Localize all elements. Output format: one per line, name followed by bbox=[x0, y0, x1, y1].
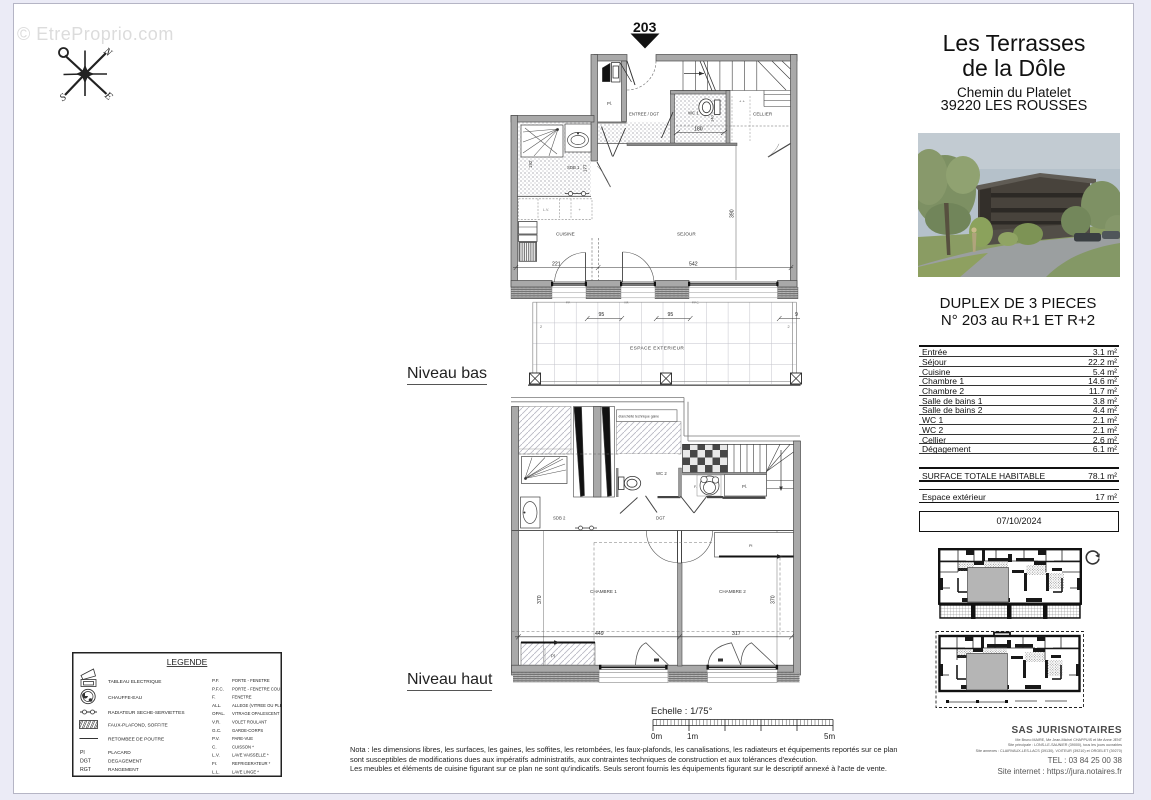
svg-text:VITRAGE OPALESCENT: VITRAGE OPALESCENT bbox=[232, 711, 280, 716]
svg-text:Pl: Pl bbox=[80, 750, 85, 756]
svg-text:GARDE-CORPS: GARDE-CORPS bbox=[232, 728, 263, 733]
svg-text:CHAMBRE 1: CHAMBRE 1 bbox=[590, 589, 617, 594]
svg-text:LAVE LINGE *: LAVE LINGE * bbox=[232, 769, 259, 774]
svg-text:5m: 5m bbox=[824, 732, 835, 741]
svg-text:542: 542 bbox=[689, 262, 698, 268]
svg-text:+ +: + + bbox=[739, 99, 745, 104]
svg-text:317: 317 bbox=[732, 631, 741, 637]
svg-text:V.R.: V.R. bbox=[212, 720, 221, 725]
svg-text:étanchéité technique gaine: étanchéité technique gaine bbox=[619, 415, 660, 419]
svg-text:ALL.: ALL. bbox=[212, 703, 221, 708]
svg-text:CELLIER: CELLIER bbox=[753, 112, 773, 117]
svg-text:Pl.: Pl. bbox=[742, 484, 747, 489]
svg-text:DEGAGEMENT: DEGAGEMENT bbox=[108, 759, 142, 765]
svg-text:OPAL.: OPAL. bbox=[212, 711, 225, 716]
svg-text:WC 2: WC 2 bbox=[656, 471, 667, 476]
svg-text:Pl: Pl bbox=[551, 654, 555, 659]
svg-text:180: 180 bbox=[694, 127, 703, 133]
svg-text:370: 370 bbox=[771, 595, 777, 604]
svg-text:FAUX-PLAFOND, SOFFITE: FAUX-PLAFOND, SOFFITE bbox=[108, 723, 168, 729]
svg-text:Pl.: Pl. bbox=[607, 101, 612, 106]
svg-text:+: + bbox=[579, 207, 582, 212]
svg-text:RADIATEUR SECHE-SERVIETTES: RADIATEUR SECHE-SERVIETTES bbox=[108, 710, 185, 716]
svg-text:C.: C. bbox=[212, 744, 217, 749]
svg-text:192: 192 bbox=[528, 160, 533, 168]
svg-text:SDB 1: SDB 1 bbox=[567, 165, 580, 170]
svg-text:PLACARD: PLACARD bbox=[108, 750, 131, 756]
svg-text:0m: 0m bbox=[651, 732, 662, 741]
svg-text:F.: F. bbox=[212, 695, 216, 700]
svg-text:L.L.: L.L. bbox=[212, 769, 220, 774]
svg-text:177: 177 bbox=[583, 164, 588, 172]
svg-text:P.F.C.: P.F.C. bbox=[692, 301, 699, 305]
svg-text:FENETRE: FENETRE bbox=[232, 695, 252, 700]
svg-text:CHAUFFE-EAU: CHAUFFE-EAU bbox=[108, 695, 143, 701]
svg-text:DGT: DGT bbox=[656, 516, 665, 521]
svg-text:PARE-VUE: PARE-VUE bbox=[232, 736, 253, 741]
svg-text:2: 2 bbox=[540, 325, 542, 329]
svg-text:CUISINE: CUISINE bbox=[556, 232, 575, 237]
svg-text:RETOMBEE DE POUTRE: RETOMBEE DE POUTRE bbox=[108, 737, 164, 743]
svg-text:F.: F. bbox=[694, 485, 697, 489]
svg-text:CHAMBRE 2: CHAMBRE 2 bbox=[719, 589, 746, 594]
svg-text:RGT: RGT bbox=[80, 767, 92, 773]
svg-text:V.R.: V.R. bbox=[624, 301, 629, 305]
svg-text:SDB 2: SDB 2 bbox=[553, 516, 566, 521]
svg-text:L.V.: L.V. bbox=[543, 208, 549, 212]
svg-text:370: 370 bbox=[537, 595, 543, 604]
svg-text:ALLEGE (VITREE OU PLEINE SELON: ALLEGE (VITREE OU PLEINE SELON LES CAS) bbox=[232, 703, 282, 708]
svg-text:LEGENDE: LEGENDE bbox=[167, 657, 208, 667]
svg-text:390: 390 bbox=[730, 209, 736, 218]
svg-text:TABLEAU ELECTRIQUE: TABLEAU ELECTRIQUE bbox=[108, 679, 162, 685]
svg-text:P.F.C.: P.F.C. bbox=[212, 686, 224, 691]
svg-text:1m: 1m bbox=[687, 732, 698, 741]
svg-text:G.C.: G.C. bbox=[212, 728, 221, 733]
svg-text:Fr.: Fr. bbox=[212, 761, 217, 766]
svg-text:DGT: DGT bbox=[80, 759, 92, 765]
svg-text:P.F.: P.F. bbox=[566, 301, 571, 305]
svg-text:REFRIGERATEUR *: REFRIGERATEUR * bbox=[232, 761, 271, 766]
svg-text:L.V.: L.V. bbox=[212, 753, 220, 758]
svg-text:ENTREE / DGT: ENTREE / DGT bbox=[629, 112, 659, 117]
svg-text:RANGEMENT: RANGEMENT bbox=[108, 767, 139, 773]
svg-text:2: 2 bbox=[788, 325, 790, 329]
svg-text:P.F.: P.F. bbox=[212, 678, 219, 683]
svg-text:9: 9 bbox=[795, 312, 798, 318]
svg-text:CUISSON *: CUISSON * bbox=[232, 744, 254, 749]
svg-text:ESPACE EXTERIEUR: ESPACE EXTERIEUR bbox=[630, 346, 684, 352]
svg-text:PORTE - FENETRE: PORTE - FENETRE bbox=[232, 678, 270, 683]
svg-text:PORTE - FENETRE COULISSANTE: PORTE - FENETRE COULISSANTE bbox=[232, 686, 282, 691]
svg-text:P.V.: P.V. bbox=[212, 736, 220, 741]
svg-text:Pl: Pl bbox=[749, 544, 753, 548]
svg-text:140: 140 bbox=[710, 115, 715, 122]
svg-text:449: 449 bbox=[595, 631, 604, 637]
svg-text:SEJOUR: SEJOUR bbox=[677, 232, 696, 237]
svg-text:VOLET ROULANT: VOLET ROULANT bbox=[232, 720, 267, 725]
svg-text:95: 95 bbox=[668, 312, 674, 318]
svg-text:WC 1: WC 1 bbox=[688, 111, 699, 116]
svg-text:LAVE VAISSELLE *: LAVE VAISSELLE * bbox=[232, 753, 269, 758]
svg-text:95: 95 bbox=[599, 312, 605, 318]
